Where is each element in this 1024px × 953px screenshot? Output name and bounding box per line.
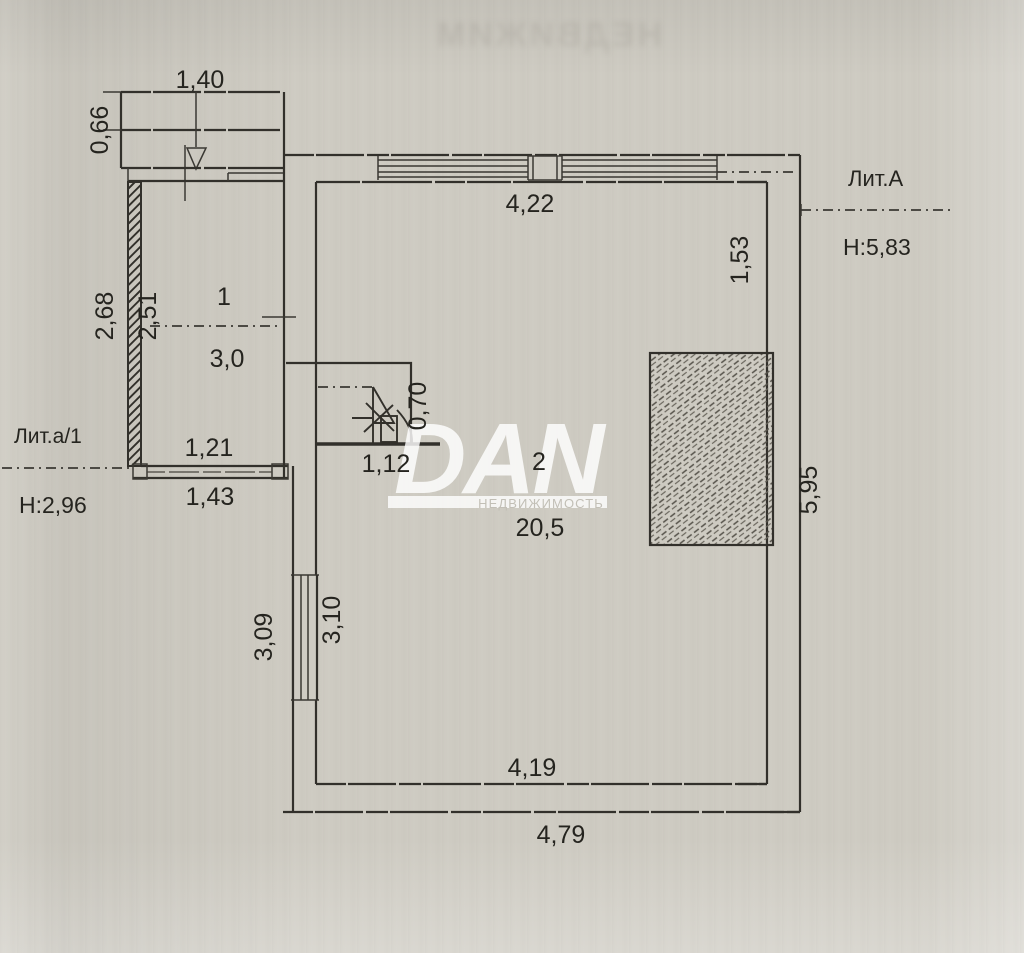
svg-text:2,51: 2,51 (134, 292, 162, 341)
svg-text:1,21: 1,21 (185, 434, 234, 462)
svg-text:20,5: 20,5 (516, 514, 565, 542)
svg-text:H:5,83: H:5,83 (843, 234, 911, 260)
svg-text:4,19: 4,19 (508, 754, 557, 782)
svg-text:1,40: 1,40 (176, 66, 225, 94)
svg-text:2: 2 (532, 448, 546, 476)
svg-text:0,70: 0,70 (404, 382, 432, 431)
svg-text:2,68: 2,68 (91, 292, 119, 341)
svg-text:1,43: 1,43 (186, 483, 235, 511)
svg-text:3,0: 3,0 (210, 345, 245, 373)
svg-text:3,09: 3,09 (250, 613, 278, 662)
svg-text:1,12: 1,12 (362, 450, 411, 478)
svg-text:НЕДВИЖИМОСТЬ: НЕДВИЖИМОСТЬ (478, 496, 604, 511)
svg-text:0,66: 0,66 (86, 106, 114, 155)
svg-text:1: 1 (217, 283, 231, 311)
svg-text:Лит.А: Лит.А (848, 166, 903, 191)
svg-text:4,22: 4,22 (506, 190, 555, 218)
svg-text:3,10: 3,10 (318, 596, 346, 645)
svg-text:1,53: 1,53 (726, 236, 754, 285)
svg-text:Лит.а/1: Лит.а/1 (14, 425, 82, 448)
svg-text:4,79: 4,79 (537, 821, 586, 849)
svg-text:H:2,96: H:2,96 (19, 492, 87, 518)
svg-text:5,95: 5,95 (795, 466, 823, 515)
